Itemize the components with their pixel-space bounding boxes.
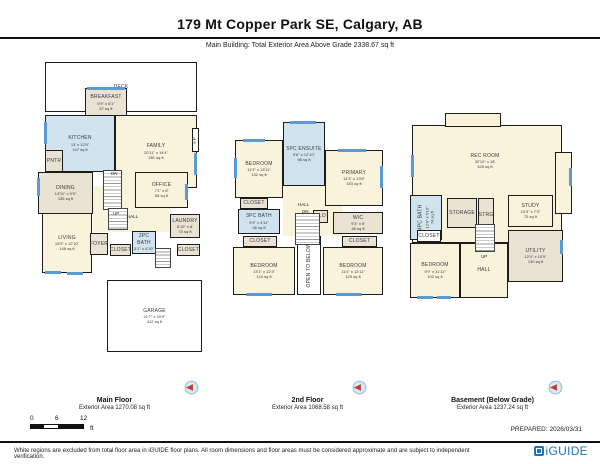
room-label: BEDROOM9'9" x 11'11"102 sq ft bbox=[421, 262, 448, 279]
room-closet: CLOSET bbox=[240, 198, 268, 209]
room-label-line: 5'1" x 4'10" bbox=[133, 246, 155, 251]
room-label: CLOSET bbox=[110, 247, 131, 254]
header-rule bbox=[0, 37, 600, 39]
compass-icon bbox=[352, 380, 367, 395]
room-label-line: 144 sq ft bbox=[250, 274, 277, 279]
room-label: LAUNDRY8'10" x 8'70 sq ft bbox=[172, 218, 197, 235]
window-marker bbox=[45, 271, 61, 274]
room-label-line: CLOSET bbox=[243, 200, 264, 207]
room-label: BEDROOM13'1" x 12'3"144 sq ft bbox=[250, 263, 277, 280]
room-label-line: STRG bbox=[479, 212, 494, 219]
window-marker bbox=[67, 272, 83, 275]
plan-label-up: UP bbox=[113, 211, 119, 216]
window-marker bbox=[37, 178, 40, 196]
room-label-line: CLOSET bbox=[249, 238, 270, 245]
room-label: CLOSET bbox=[418, 233, 439, 240]
scale-segment bbox=[44, 425, 58, 428]
room-label-line: 46 sq ft bbox=[351, 226, 365, 231]
room-label-line: 9'3" x 4'11" bbox=[246, 220, 272, 225]
room-utility: UTILITY12'4" x 10'9"130 sq ft bbox=[508, 230, 563, 282]
room-closet: CLOSET bbox=[417, 230, 441, 242]
room-3pc-bath: 3PC BATH9'3" x 4'11"46 sq ft bbox=[238, 209, 280, 234]
room-area bbox=[445, 113, 501, 127]
scale-segment bbox=[31, 425, 44, 428]
room-pntr: PNTR bbox=[45, 150, 63, 172]
disclaimer-text: White regions are excluded from total fl… bbox=[14, 448, 484, 460]
room-label: BREAKFAST9'9" x 6'1"57 sq ft bbox=[90, 94, 121, 111]
scale-tick: 6 bbox=[55, 415, 59, 422]
room-label: 3PC BATH9'3" x 4'11"46 sq ft bbox=[246, 213, 272, 230]
room-label: CLOSET bbox=[178, 247, 199, 254]
room-living: LIVING15'9" x 12'10"148 sq ft bbox=[42, 213, 92, 273]
room-label-line: CLOSET bbox=[418, 233, 439, 240]
room-label-line: 2PC BATH bbox=[133, 233, 155, 246]
room-label: WIC9'3" x 5'46 sq ft bbox=[351, 215, 365, 232]
room-label: DINING14'11" x 9'9"135 sq ft bbox=[55, 185, 77, 202]
window-marker bbox=[185, 184, 188, 200]
room-label-line: PNTR bbox=[47, 158, 61, 165]
room-label: BEDROOM11'3" x 13'11"132 sq ft bbox=[245, 161, 272, 178]
room-bedroom: BEDROOM11'3" x 13'11"132 sq ft bbox=[235, 140, 283, 198]
room-label-line: FP bbox=[192, 137, 199, 144]
scale-bar-graphic bbox=[30, 424, 84, 429]
scale-segment bbox=[58, 425, 83, 428]
plan-label-hall: HALL bbox=[298, 202, 309, 207]
room-label-line: HALL bbox=[477, 267, 490, 274]
footer-rule bbox=[0, 441, 600, 443]
room-bedroom: BEDROOM13'1" x 12'3"144 sq ft bbox=[233, 247, 295, 295]
room-label-line: STORAGE bbox=[449, 210, 475, 217]
window-marker bbox=[87, 87, 125, 90]
room-label-line: 57 sq ft bbox=[90, 106, 121, 111]
room-label: LIVING15'9" x 12'10"148 sq ft bbox=[55, 235, 79, 252]
room-label: OFFICE7'1" x 8'55 sq ft bbox=[152, 182, 172, 199]
room-closet: CLOSET bbox=[342, 236, 377, 247]
room-label: GARAGE21'7" x 20'9"412 sq ft bbox=[143, 308, 166, 325]
floor-plan-page: 179 Mt Copper Park SE, Calgary, AB Main … bbox=[0, 0, 600, 464]
room-label-line: CLOSET bbox=[110, 247, 131, 254]
room-office: OFFICE7'1" x 8'55 sq ft bbox=[135, 172, 188, 208]
room-breakfast: BREAKFAST9'9" x 6'1"57 sq ft bbox=[85, 88, 127, 117]
room-label-line: 70 sq ft bbox=[172, 229, 197, 234]
room-label-line: 147 sq ft bbox=[68, 147, 91, 152]
iguide-logo-text: iGUIDE bbox=[546, 444, 588, 458]
window-marker bbox=[437, 296, 451, 299]
room-label-line: CLOSET bbox=[349, 238, 370, 245]
room-label-line: BEDROOM bbox=[421, 262, 448, 269]
main-floor-plan: DECKBREAKFAST9'9" x 6'1"57 sq ftKITCHEN1… bbox=[15, 58, 215, 370]
scale-unit: ft bbox=[90, 425, 94, 432]
stairs bbox=[155, 248, 171, 268]
stairs bbox=[475, 224, 495, 252]
second-floor-plan: 5PC ENSUITE9'6" x 12'10"98 sq ftBEDROOM1… bbox=[228, 118, 388, 298]
room-rec-room: REC ROOM32'10" x 18'425 sq ft bbox=[425, 132, 545, 190]
room-garage: GARAGE21'7" x 20'9"412 sq ft bbox=[107, 280, 202, 352]
room-label: FAMILY20'11" x 14'4"281 sq ft bbox=[144, 143, 168, 160]
room-label-line: 412 sq ft bbox=[143, 319, 166, 324]
plan-label-dn: DN bbox=[111, 171, 118, 176]
room-closet: CLOSET bbox=[177, 244, 200, 256]
room-label-line: 129 sq ft bbox=[339, 274, 366, 279]
room-label-line: 425 sq ft bbox=[470, 164, 499, 169]
room-label-line: 9'9" x 11'11" bbox=[421, 269, 448, 274]
room-label: 5PC ENSUITE9'6" x 12'10"98 sq ft bbox=[287, 146, 322, 163]
room-study: STUDY10'3" x 7'3"73 sq ft bbox=[508, 195, 553, 227]
window-marker bbox=[569, 168, 572, 186]
plan-label-up: UP bbox=[481, 254, 487, 259]
room-bedroom: BEDROOM9'9" x 11'11"102 sq ft bbox=[410, 243, 460, 298]
room-label-line: 4PC BATH bbox=[418, 205, 425, 231]
room-label: CLOSET bbox=[243, 200, 264, 207]
room-bedroom: BEDROOM11'4" x 12'11"129 sq ft bbox=[323, 247, 383, 295]
room-5pc-ensuite: 5PC ENSUITE9'6" x 12'10"98 sq ft bbox=[283, 122, 325, 186]
room-label-line: 135 sq ft bbox=[55, 196, 77, 201]
room-primary: PRIMARY14'3" x 13'6"183 sq ft bbox=[325, 150, 383, 206]
room-label-line: BREAKFAST bbox=[90, 94, 121, 101]
room-label-line: 13' x 12'9" bbox=[68, 142, 91, 147]
room-label: FOYER bbox=[90, 241, 108, 248]
room-label: REC ROOM32'10" x 18'425 sq ft bbox=[470, 153, 499, 170]
floor-name: Basement (Below Grade) bbox=[405, 397, 580, 404]
window-marker bbox=[338, 149, 366, 152]
room-label: BEDROOM11'4" x 12'11"129 sq ft bbox=[339, 263, 366, 280]
room-label-line: 73 sq ft bbox=[521, 214, 541, 219]
room-laundry: LAUNDRY8'10" x 8'70 sq ft bbox=[170, 214, 200, 238]
window-marker bbox=[194, 153, 197, 175]
window-marker bbox=[380, 166, 383, 188]
window-marker bbox=[417, 296, 433, 299]
room-label: STUDY10'3" x 7'3"73 sq ft bbox=[521, 203, 541, 220]
room-label: 4PC BATH12'9" x 5'10"74 sq ft bbox=[418, 205, 435, 231]
room-label-line: OPEN TO BELOW bbox=[306, 243, 313, 287]
floor-name: 2nd Floor bbox=[225, 397, 390, 404]
room-label: STRG bbox=[479, 212, 494, 219]
window-marker bbox=[336, 293, 362, 296]
window-marker bbox=[44, 122, 47, 144]
window-marker bbox=[290, 121, 316, 124]
room-label: STORAGE bbox=[449, 210, 475, 217]
room-label-line: 183 sq ft bbox=[342, 181, 366, 186]
room-label-line: KITCHEN bbox=[68, 135, 91, 142]
room-label: PRIMARY14'3" x 13'6"183 sq ft bbox=[342, 170, 366, 187]
room-label: CLOSET bbox=[249, 238, 270, 245]
plan-label-dn: DN bbox=[302, 209, 309, 214]
room-label: OPEN TO BELOW bbox=[306, 243, 313, 287]
room-storage: STORAGE bbox=[447, 198, 477, 228]
window-marker bbox=[234, 158, 237, 178]
page-subtitle: Main Building: Total Exterior Area Above… bbox=[0, 42, 600, 49]
floor-name: Main Floor bbox=[32, 397, 197, 404]
room-label-line: FAMILY bbox=[144, 143, 168, 150]
room-label-line: 46 sq ft bbox=[246, 225, 272, 230]
room-label: 2PC BATH5'1" x 4'10" bbox=[133, 233, 155, 251]
room-label-line: 74 sq ft bbox=[429, 205, 434, 231]
room-wic: WIC9'3" x 5'46 sq ft bbox=[333, 212, 383, 234]
room-label-line: CLOSET bbox=[178, 247, 199, 254]
iguide-logo: iGUIDE bbox=[534, 444, 588, 458]
stairs bbox=[295, 213, 320, 245]
room-label-line: 3PC BATH bbox=[246, 213, 272, 220]
plan-label-hall: HALL bbox=[127, 214, 138, 219]
compass-icon bbox=[184, 380, 199, 395]
room-label: UTILITY12'4" x 10'9"130 sq ft bbox=[525, 248, 547, 265]
basement-caption: Basement (Below Grade) Exterior Area 123… bbox=[405, 397, 580, 411]
room-label-line: FOYER bbox=[90, 241, 108, 248]
room-label: FP bbox=[192, 137, 199, 144]
main-floor-caption: Main Floor Exterior Area 1270.08 sq ft bbox=[32, 397, 197, 411]
second-floor-caption: 2nd Floor Exterior Area 1068.58 sq ft bbox=[225, 397, 390, 411]
room-label-line: 98 sq ft bbox=[287, 157, 322, 162]
scale-tick: 12 bbox=[80, 415, 87, 422]
room-2pc-bath: 2PC BATH5'1" x 4'10" bbox=[132, 231, 156, 254]
room-dining: DINING14'11" x 9'9"135 sq ft bbox=[38, 172, 93, 214]
room-label: CLOSET bbox=[349, 238, 370, 245]
room-closet: CLOSET bbox=[243, 236, 277, 247]
room-closet: CLOSET bbox=[110, 244, 131, 256]
floor-area: Exterior Area 1237.24 sq ft bbox=[405, 405, 580, 411]
room-label: PNTR bbox=[47, 158, 61, 165]
room-label-line: 130 sq ft bbox=[525, 259, 547, 264]
room-label-line: 132 sq ft bbox=[245, 172, 272, 177]
scale-tick-labels: 0 6 12 bbox=[30, 415, 120, 423]
floor-area: Exterior Area 1270.08 sq ft bbox=[32, 405, 197, 411]
room-label-line: 102 sq ft bbox=[421, 274, 448, 279]
scale-tick: 0 bbox=[30, 415, 34, 422]
room-foyer: FOYER bbox=[90, 233, 108, 255]
window-marker bbox=[243, 139, 265, 142]
scale-bar: 0 6 12 ft bbox=[30, 415, 120, 429]
stairs bbox=[103, 170, 122, 210]
room-fp: FP bbox=[192, 128, 199, 152]
window-marker bbox=[246, 293, 272, 296]
iguide-logo-icon bbox=[534, 446, 544, 456]
room-label: HALL bbox=[477, 267, 490, 274]
page-title: 179 Mt Copper Park SE, Calgary, AB bbox=[0, 16, 600, 32]
room-label-line: 281 sq ft bbox=[144, 155, 168, 160]
window-marker bbox=[411, 155, 414, 177]
window-marker bbox=[560, 240, 563, 254]
room-label-line: 55 sq ft bbox=[152, 193, 172, 198]
room-label-line: 148 sq ft bbox=[55, 246, 79, 251]
basement-floor-plan: REC ROOM32'10" x 18'425 sq ft4PC BATH12'… bbox=[405, 110, 585, 310]
room-label-line: 20'11" x 14'4" bbox=[144, 150, 168, 155]
floor-area: Exterior Area 1068.58 sq ft bbox=[225, 405, 390, 411]
compass-icon bbox=[548, 380, 563, 395]
room-label: KITCHEN13' x 12'9"147 sq ft bbox=[68, 135, 91, 152]
prepared-date: PREPARED: 2026/03/31 bbox=[511, 426, 582, 433]
